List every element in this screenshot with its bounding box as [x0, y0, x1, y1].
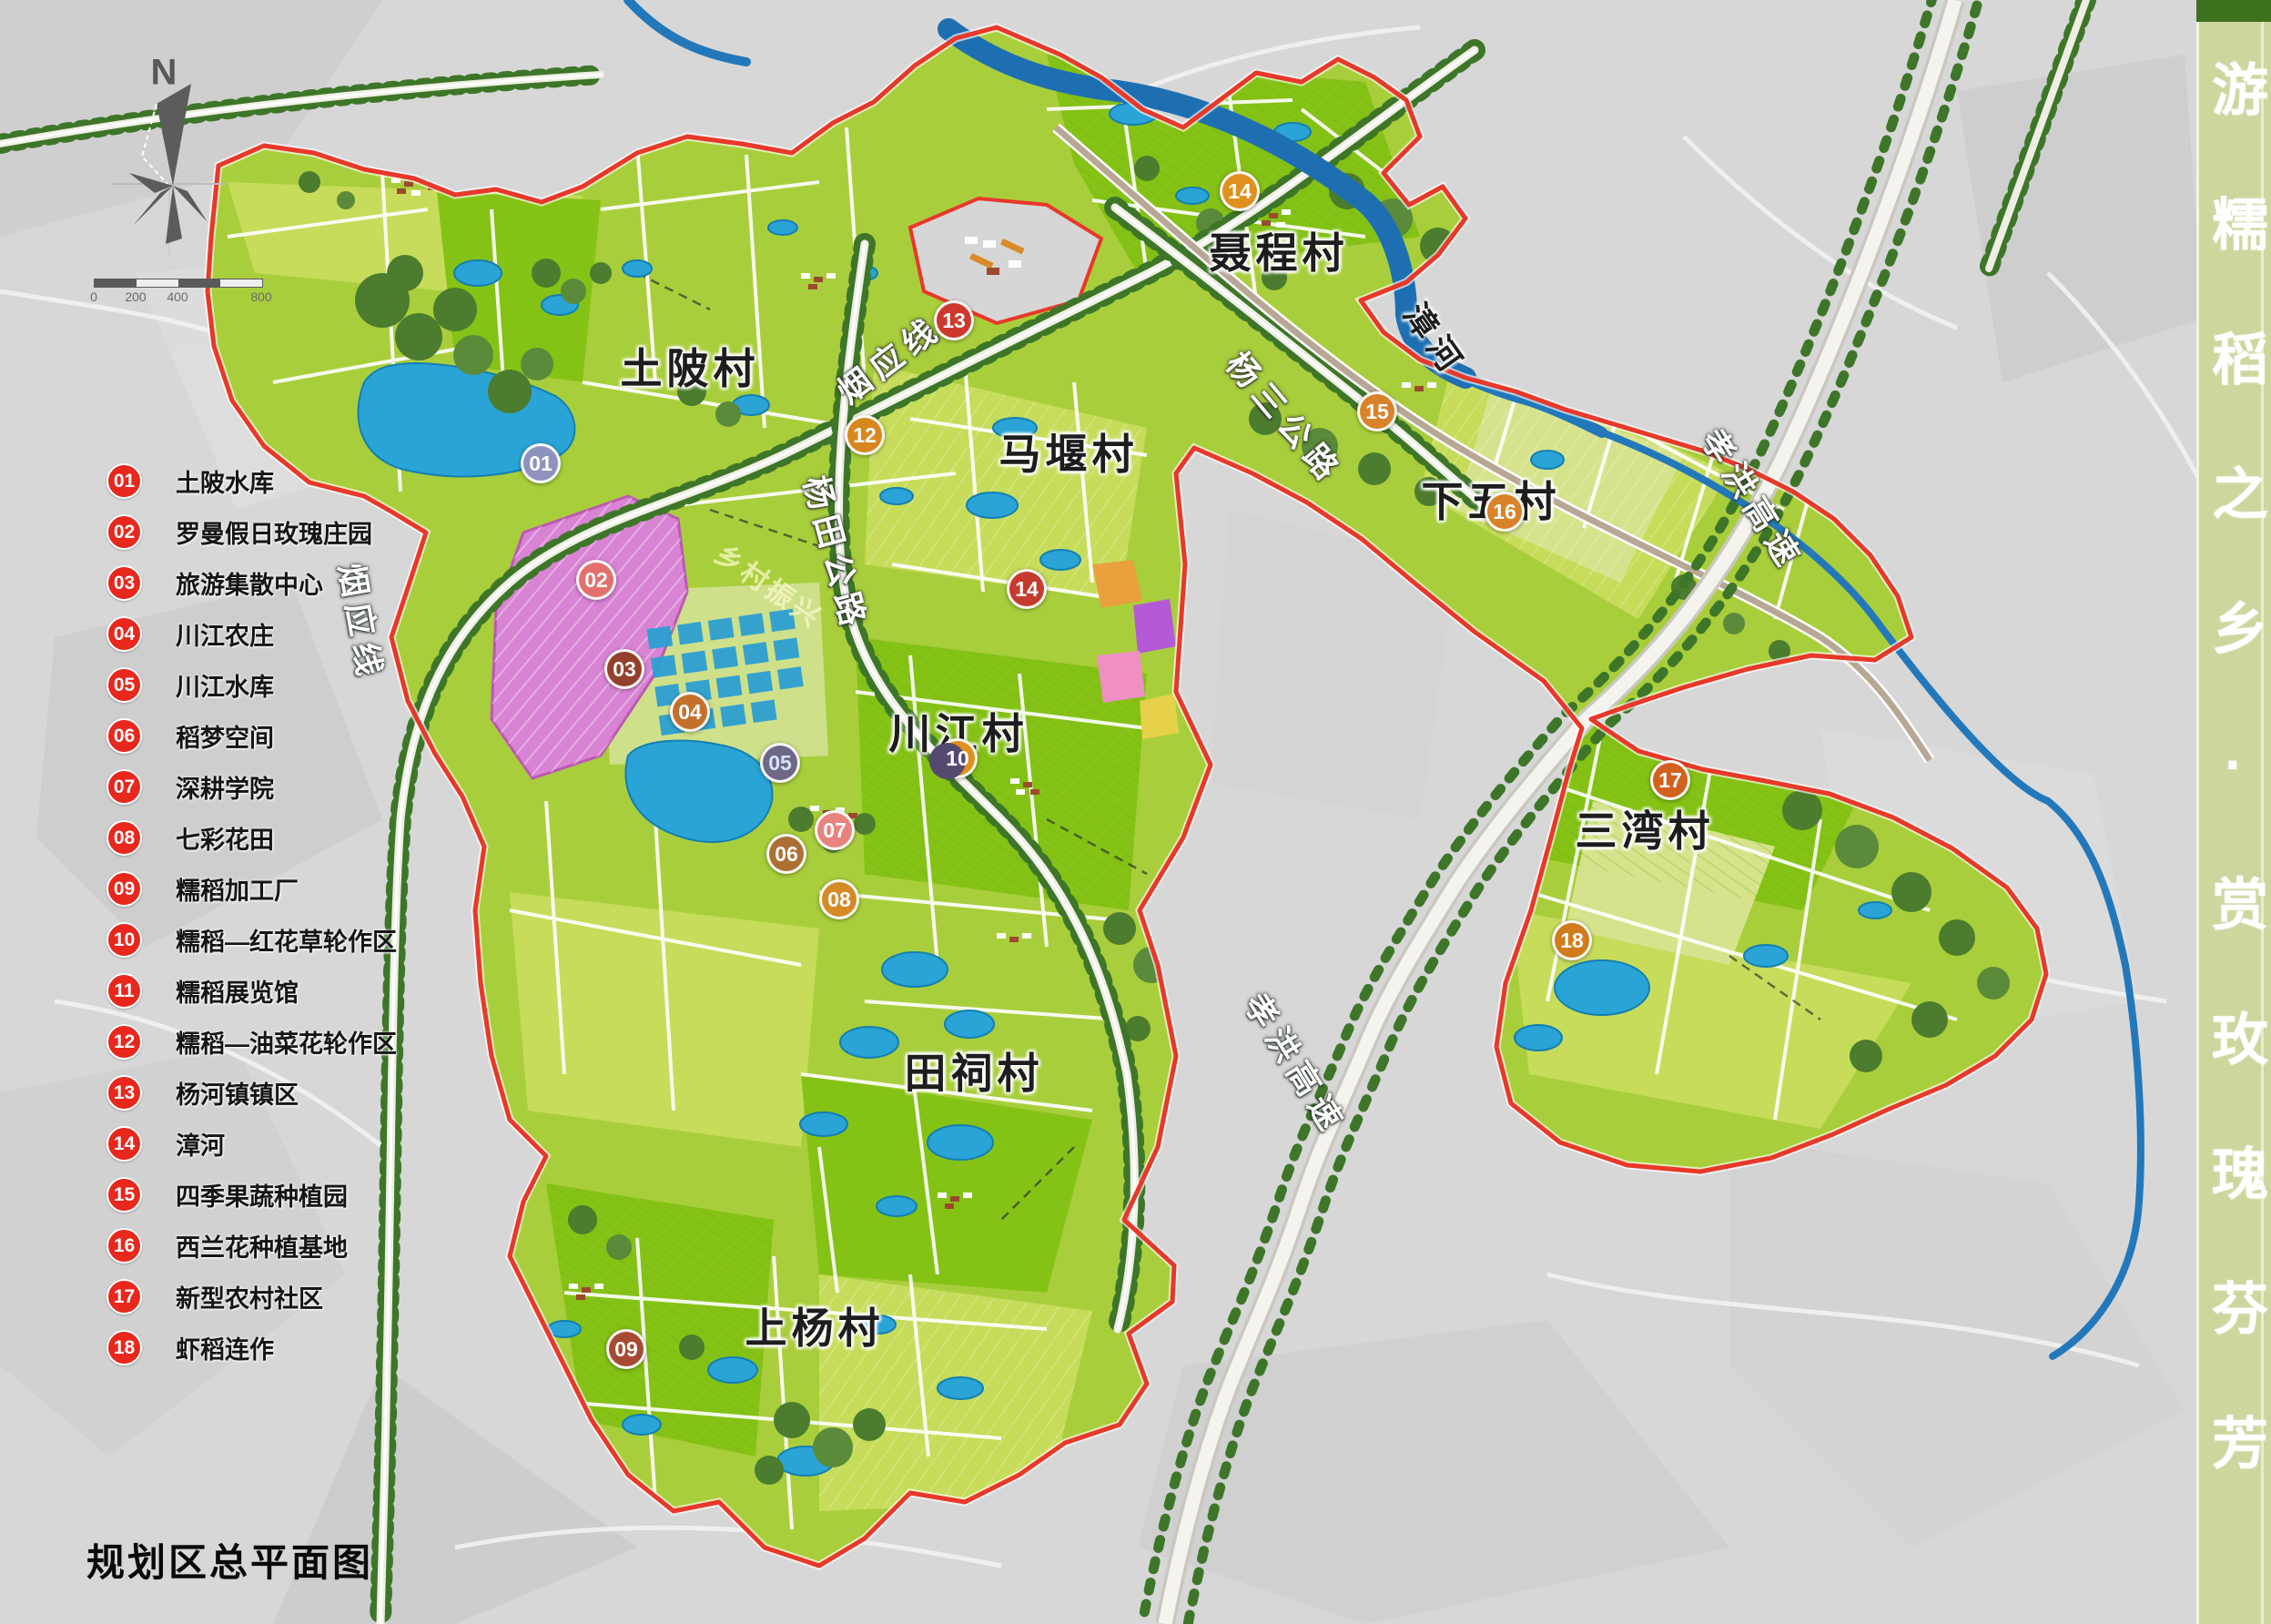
legend-number-badge: 18	[106, 1330, 142, 1365]
map-marker: 16	[1485, 492, 1525, 532]
map-marker: 18	[1552, 920, 1592, 960]
map-marker: 07	[815, 810, 855, 850]
legend-item: 18 虾稻连作	[106, 1330, 397, 1365]
legend-number-badge: 12	[106, 1024, 142, 1060]
legend-number-badge: 15	[106, 1177, 142, 1213]
legend-item: 02 罗曼假日玫瑰庄园	[106, 514, 397, 550]
legend-number-badge: 08	[106, 820, 142, 856]
legend-number-badge: 14	[106, 1126, 142, 1162]
legend-label: 四季果蔬种植园	[176, 1177, 348, 1213]
village-label: 上杨村	[745, 1295, 885, 1355]
legend-number-badge: 06	[106, 718, 142, 754]
legend-item: 15 四季果蔬种植园	[106, 1177, 397, 1213]
poster-vertical-title: 游糯稻之乡·赏玫瑰芬芳	[2196, 60, 2271, 1548]
scale-bar-track	[94, 279, 263, 288]
legend-number-badge: 01	[106, 463, 142, 499]
legend: 01 土陂水库 02 罗曼假日玫瑰庄园 03 旅游集散中心 04 川江农庄 05…	[106, 463, 397, 1381]
legend-label: 旅游集散中心	[176, 565, 323, 601]
map-marker: 14	[1007, 569, 1047, 609]
legend-label: 深耕学院	[176, 769, 274, 805]
compass: N	[107, 47, 244, 257]
map-marker: 12	[845, 415, 885, 455]
village-label: 三湾村	[1576, 798, 1715, 858]
legend-item: 03 旅游集散中心	[106, 565, 397, 601]
legend-label: 川江农庄	[176, 616, 274, 652]
legend-number-badge: 16	[106, 1228, 142, 1264]
legend-label: 西兰花种植基地	[176, 1228, 348, 1264]
legend-label: 杨河镇镇区	[176, 1075, 299, 1111]
compass-north-label: N	[151, 53, 177, 94]
legend-label: 土陂水库	[176, 463, 274, 499]
map-marker: 17	[1650, 760, 1690, 800]
legend-number-badge: 07	[106, 769, 142, 805]
legend-number-badge: 03	[106, 565, 142, 601]
legend-number-badge: 02	[106, 514, 142, 550]
legend-label: 川江水库	[176, 667, 274, 703]
legend-label: 虾稻连作	[176, 1330, 274, 1365]
village-label: 土陂村	[621, 336, 760, 396]
legend-item: 16 西兰花种植基地	[106, 1228, 397, 1264]
scale-bar: 0200400800	[94, 279, 263, 308]
map-marker: 13	[934, 300, 974, 340]
legend-number-badge: 11	[106, 973, 142, 1009]
legend-label: 七彩花田	[176, 820, 274, 856]
legend-label: 漳河	[176, 1126, 225, 1162]
legend-item: 10 糯稻—红花草轮作区	[106, 922, 397, 958]
map-marker: 05	[760, 743, 800, 783]
legend-label: 糯稻展览馆	[176, 973, 299, 1009]
legend-label: 新型农村社区	[176, 1279, 323, 1314]
legend-label: 糯稻—油菜花轮作区	[176, 1024, 397, 1060]
sidebar: 游糯稻之乡·赏玫瑰芬芳	[2196, 0, 2271, 1624]
legend-item: 11 糯稻展览馆	[106, 973, 397, 1009]
map-marker: 03	[604, 649, 644, 689]
village-label: 马堰村	[999, 421, 1139, 482]
legend-number-badge: 17	[106, 1279, 142, 1314]
legend-number-badge: 10	[106, 922, 142, 958]
legend-item: 13 杨河镇镇区	[106, 1075, 397, 1111]
legend-item: 14 漳河	[106, 1126, 397, 1162]
map-marker: 14	[1220, 171, 1260, 211]
map-marker: 15	[1357, 391, 1397, 431]
legend-number-badge: 05	[106, 667, 142, 703]
legend-number-badge: 04	[106, 616, 142, 652]
legend-item: 09 糯稻加工厂	[106, 871, 397, 907]
legend-label: 稻梦空间	[176, 718, 274, 754]
village-label: 聂程村	[1210, 220, 1349, 280]
legend-label: 糯稻—红花草轮作区	[176, 922, 397, 958]
map-marker: 09	[606, 1329, 646, 1369]
scale-tick-label: 400	[167, 289, 188, 304]
map-marker: 04	[670, 692, 710, 732]
village-label: 田祠村	[905, 1040, 1044, 1101]
plan-title: 规划区总平面图	[86, 1532, 373, 1588]
scale-tick-label: 800	[250, 289, 271, 304]
legend-number-badge: 13	[106, 1075, 142, 1111]
legend-item: 06 稻梦空间	[106, 718, 397, 754]
legend-number-badge: 09	[106, 871, 142, 907]
map-marker: 02	[576, 560, 616, 600]
map-marker: 08	[819, 879, 859, 919]
legend-item: 01 土陂水库	[106, 463, 397, 499]
legend-item: 05 川江水库	[106, 667, 397, 703]
legend-item: 04 川江农庄	[106, 616, 397, 652]
legend-item: 17 新型农村社区	[106, 1279, 397, 1314]
legend-label: 糯稻加工厂	[176, 871, 299, 907]
scale-tick-label: 200	[125, 289, 146, 304]
scale-tick-label: 0	[90, 289, 97, 304]
legend-item: 08 七彩花田	[106, 820, 397, 856]
map-marker: 06	[766, 834, 806, 874]
map-marker: 10	[938, 738, 978, 778]
planning-poster: 土陂村聂程村马堰村下五村川江村三湾村田祠村上杨村 烟应线烟应线杨田公路杨三公路孝…	[0, 0, 2271, 1624]
legend-item: 07 深耕学院	[106, 769, 397, 805]
map-marker: 01	[521, 443, 561, 483]
legend-label: 罗曼假日玫瑰庄园	[176, 514, 372, 550]
legend-item: 12 糯稻—油菜花轮作区	[106, 1024, 397, 1060]
